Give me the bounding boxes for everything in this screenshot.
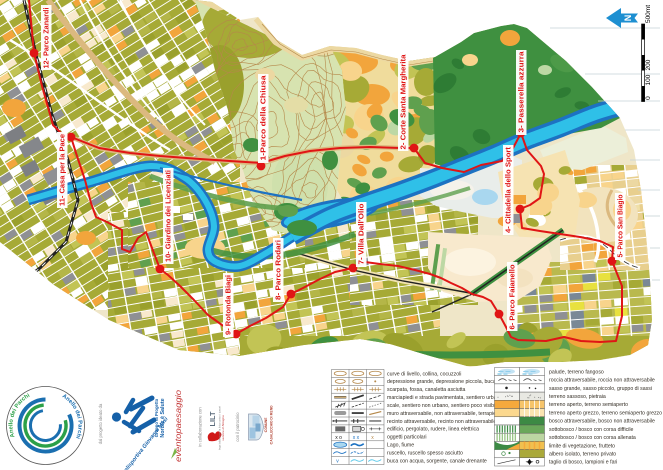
svg-text:12- Parco Zanardi: 12- Parco Zanardi — [42, 8, 51, 69]
svg-text:terreno sassoso, pietraia: terreno sassoso, pietraia — [549, 394, 606, 400]
svg-text:bosco attraversabile, bosco no: bosco attraversabile, bosco non attraver… — [549, 419, 655, 425]
svg-text:1-Parco della Chiusa: 1-Parco della Chiusa — [259, 74, 268, 160]
svg-text:sezione di Bologna: sezione di Bologna — [221, 415, 225, 441]
svg-text:sasso grande, sasso piccolo, g: sasso grande, sasso piccolo, gruppo di s… — [549, 386, 652, 392]
svg-text:ruscello, ruscello spesso asci: ruscello, ruscello spesso asciutto — [387, 450, 463, 456]
svg-text:taglio di bosco, lampioni e fa: taglio di bosco, lampioni e fari — [549, 460, 617, 466]
svg-text:terreno aperto grezzo, terreno: terreno aperto grezzo, terreno semiapert… — [549, 410, 662, 416]
svg-text:sottobosco / bosco con corsa a: sottobosco / bosco con corsa allenata — [549, 435, 636, 441]
svg-text:dal progetto ideato da: dal progetto ideato da — [98, 403, 103, 444]
svg-text:x x: x x — [353, 435, 360, 441]
svg-text:edificio, pergolato, rudere, l: edificio, pergolato, rudere, linea elett… — [387, 427, 479, 433]
svg-text:10- Giardino dei Licenziati: 10- Giardino dei Licenziati — [164, 170, 173, 262]
svg-text:11- Casa per la Pace: 11- Casa per la Pace — [58, 134, 67, 206]
svg-text:con il patrocinio: con il patrocinio — [235, 412, 240, 442]
svg-text:N: N — [623, 15, 633, 22]
svg-text:6- Parco Faianello: 6- Parco Faianello — [508, 264, 517, 330]
svg-text:scarpata, fossa, canaletta asc: scarpata, fossa, canaletta asciutta — [387, 387, 466, 393]
svg-text:oggetti particolari: oggetti particolari — [387, 435, 427, 441]
svg-text:palude, terreno fangoso: palude, terreno fangoso — [549, 369, 604, 375]
svg-text:muro attraversabile, non attra: muro attraversabile, non attraversabile,… — [387, 411, 502, 417]
svg-text:Nordic è Salute: Nordic è Salute — [160, 398, 166, 437]
svg-text:marciapiedi e strada pavimenta: marciapiedi e strada pavimentata, sentie… — [387, 395, 502, 401]
svg-text:9- Rotonda Biagi: 9- Rotonda Biagi — [224, 275, 233, 335]
svg-text:500mt: 500mt — [645, 5, 652, 23]
svg-text:albero isolato, terreno privat: albero isolato, terreno privato — [549, 452, 616, 458]
svg-text:recinto attraversabile, recint: recinto attraversabile, recinto non attr… — [387, 419, 496, 425]
svg-text:in collaborazione con: in collaborazione con — [198, 407, 203, 447]
svg-text:scale, sentiero non urbano, se: scale, sentiero non urbano, sentiero poc… — [387, 403, 499, 409]
svg-text:8- Parco Rodari: 8- Parco Rodari — [274, 240, 283, 300]
svg-text:eventopaesaggio: eventopaesaggio — [174, 389, 183, 462]
svg-text:100: 100 — [645, 74, 652, 85]
svg-text:LILT: LILT — [208, 411, 217, 427]
svg-text:x o: x o — [335, 435, 342, 441]
svg-text:200: 200 — [645, 59, 652, 70]
svg-text:0: 0 — [645, 96, 652, 100]
svg-text:5- Parco San Biagio: 5- Parco San Biagio — [616, 194, 625, 258]
svg-text:4- Cittadella dello Sport: 4- Cittadella dello Sport — [504, 146, 513, 233]
svg-text:depressione grande, depression: depressione grande, depressione piccola,… — [387, 379, 496, 385]
svg-text:7- Villa Dall'Olio: 7- Villa Dall'Olio — [357, 203, 366, 265]
svg-text:3- Passerella azzurra: 3- Passerella azzurra — [517, 50, 526, 132]
svg-text:Gruppo di Progetto: Gruppo di Progetto — [154, 398, 159, 437]
svg-text:curve di livello, collina, coc: curve di livello, collina, cocuzzoli — [387, 371, 461, 377]
svg-text:buca con acqua, sorgente, cana: buca con acqua, sorgente, canale drenant… — [387, 458, 487, 464]
svg-text:roccia attraversabile, roccia: roccia attraversabile, roccia non attrav… — [549, 378, 655, 384]
svg-text:sottobosco / bosco con corsa d: sottobosco / bosco con corsa difficile — [549, 427, 634, 433]
svg-text:Lago, fiume: Lago, fiume — [387, 443, 414, 449]
svg-text:2- Corte Santa Margherita: 2- Corte Santa Margherita — [399, 53, 408, 149]
svg-text:COMUNE: COMUNE — [263, 418, 268, 433]
svg-text:limite di vegetazione, fruttet: limite di vegetazione, frutteto — [549, 443, 615, 449]
svg-text:terreno aperto, terreno semiap: terreno aperto, terreno semiaperto — [549, 402, 628, 408]
svg-text:CASALECCHIO DI RENO: CASALECCHIO DI RENO — [269, 405, 274, 444]
